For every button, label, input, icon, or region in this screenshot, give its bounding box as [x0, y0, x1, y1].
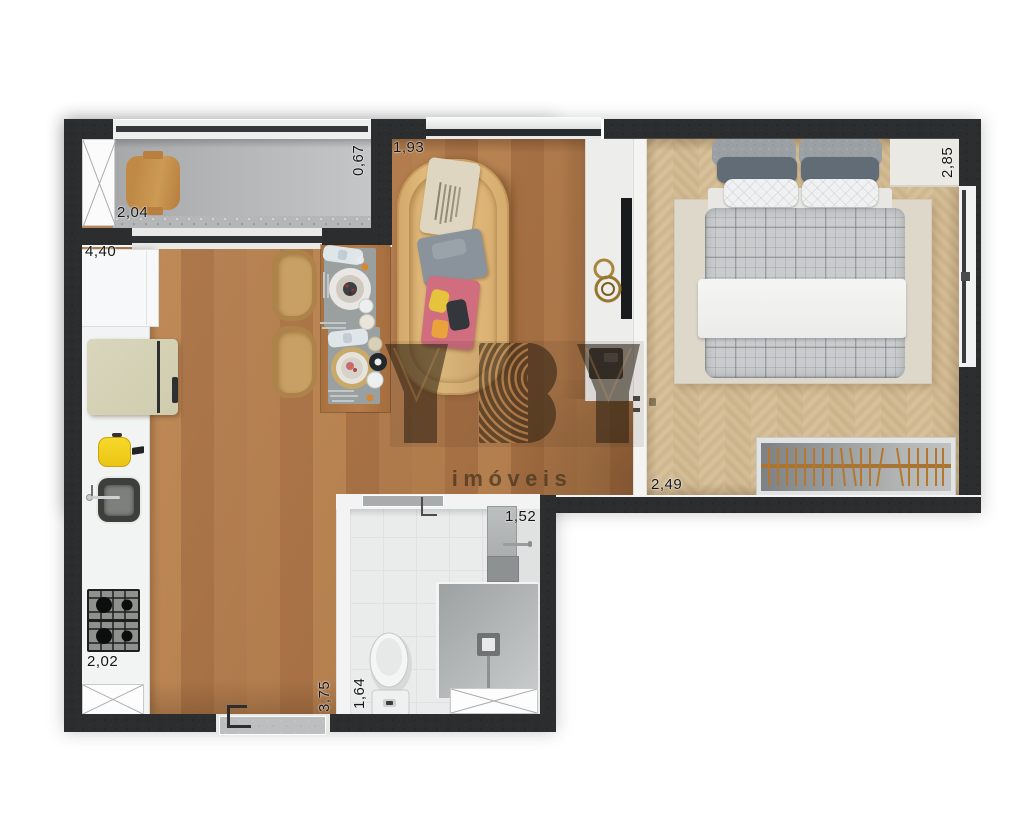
svg-text:imóveis: imóveis: [452, 466, 572, 491]
